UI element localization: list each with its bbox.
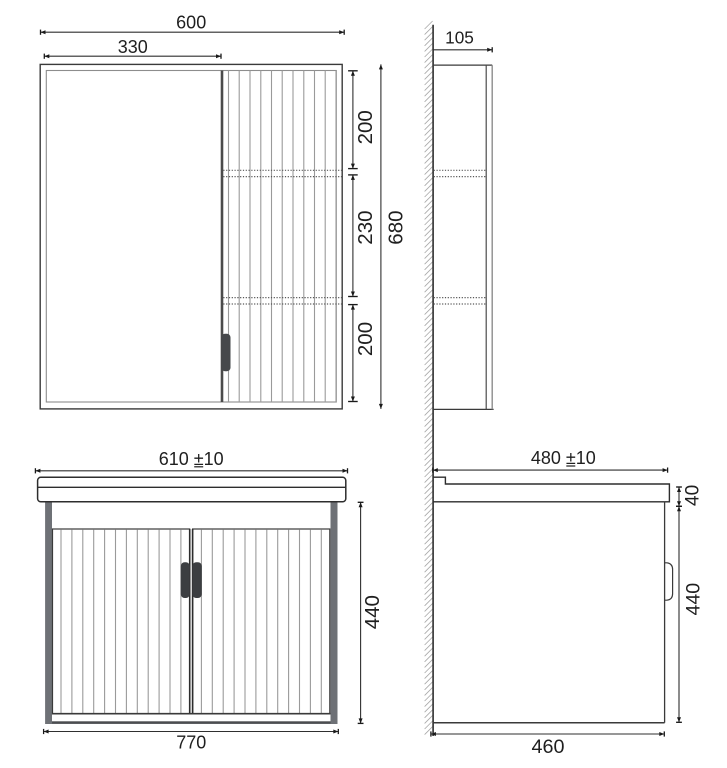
svg-text:200: 200: [354, 110, 377, 144]
svg-text:200: 200: [354, 322, 377, 356]
svg-text:440: 440: [682, 583, 704, 616]
svg-text:40: 40: [682, 485, 703, 506]
svg-text:770: 770: [176, 733, 206, 753]
svg-text:480 ±10: 480 ±10: [531, 448, 596, 468]
svg-text:330: 330: [118, 37, 148, 57]
svg-text:610 ±10: 610 ±10: [159, 449, 224, 469]
svg-text:440: 440: [361, 595, 384, 629]
svg-text:460: 460: [531, 736, 564, 758]
svg-text:230: 230: [354, 210, 377, 244]
svg-text:105: 105: [445, 28, 474, 48]
svg-text:680: 680: [385, 210, 408, 244]
svg-text:600: 600: [176, 13, 206, 33]
